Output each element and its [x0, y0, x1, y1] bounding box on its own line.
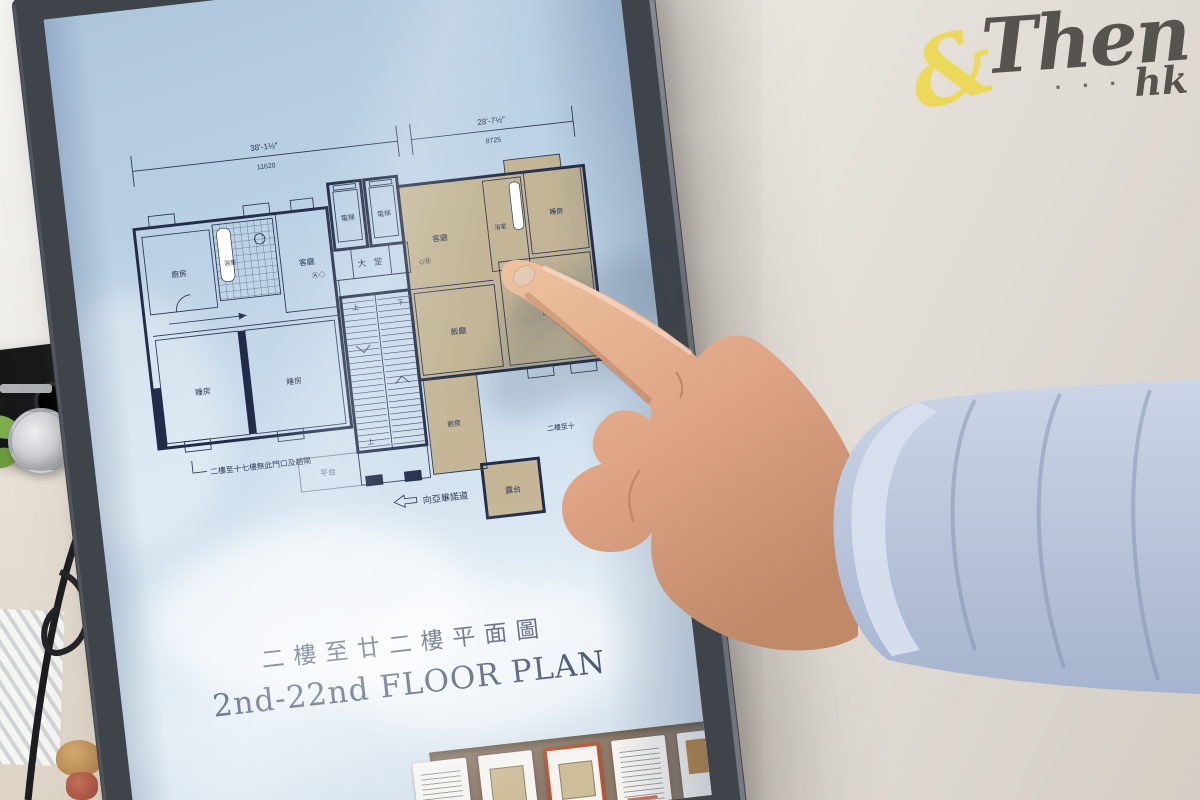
plan-note-right: 二樓至十: [547, 421, 576, 433]
label-terrace: 平台: [320, 466, 337, 478]
wooden-knob-base: [66, 772, 98, 800]
thumbnail-3-selected[interactable]: [543, 742, 607, 800]
thumbnail-content: [420, 766, 466, 800]
sleeve-folds: [953, 390, 1159, 680]
plan-note-left: 二樓至十七樓無此門口及趟閘: [210, 455, 312, 476]
street-direction: 向亞畢諾道: [394, 488, 469, 509]
wooden-knob: [56, 740, 102, 776]
logo-dots: · · ·: [1054, 70, 1125, 101]
room-label-kitchen: 廚房: [171, 268, 188, 280]
room-label-bedroom: 睡房: [286, 375, 303, 387]
lobby-marker-left: Ⓐ◇: [311, 271, 326, 281]
thumbnail-content: [489, 765, 527, 800]
room-label-dining: 飯廳: [450, 325, 467, 337]
room-label-living: 客廳: [432, 232, 449, 244]
dim-right-ft: 28'-7½″: [477, 115, 506, 127]
watermark-logo: & Then · · · hk: [935, 0, 1194, 118]
photo-stage: 38'-1½″ 11620 28'-7½″ 8725: [0, 0, 1200, 800]
sleeve-cuff: [851, 402, 938, 656]
logo-hk: hk: [1132, 56, 1189, 105]
room-label-living: 客廳: [298, 256, 315, 268]
touchscreen[interactable]: 38'-1½″ 11620 28'-7½″ 8725: [44, 0, 712, 800]
lobby-marker-right: ◇Ⓑ: [419, 257, 432, 266]
shirt-sleeve: [833, 380, 1200, 694]
dim-left-mm: 11620: [257, 162, 277, 171]
room-label-lift: 電梯: [377, 208, 392, 219]
thumbnail-2[interactable]: [478, 750, 540, 800]
floor-plan[interactable]: 38'-1½″ 11620 28'-7½″ 8725: [104, 86, 646, 611]
room-label-bedroom: 睡房: [542, 306, 559, 318]
thumbnail-content: [619, 744, 665, 800]
dim-right-mm: 8725: [485, 137, 501, 146]
thumbnail-1[interactable]: [412, 758, 474, 800]
label-balcony: 露台: [505, 483, 522, 495]
kiosk-monitor-frame: 38'-1½″ 11620 28'-7½″ 8725: [11, 0, 749, 800]
thumbnail-4[interactable]: [611, 735, 673, 800]
room-label-bedroom: 睡房: [195, 385, 212, 397]
plan-unit-left[interactable]: 廚房 浴室 客廳 睡房 睡房 二樓至十七樓無此門口及趟閘: [133, 196, 356, 482]
room-label-lift: 電梯: [341, 212, 356, 223]
thumbnail-content: [558, 760, 596, 800]
thumbnail-5[interactable]: [677, 727, 712, 800]
stair-label-down: 下: [396, 298, 404, 307]
thumbnail-content: [685, 736, 711, 774]
street-label: 向亞畢諾道: [422, 489, 468, 505]
room-label-lobby: 大 堂: [357, 255, 386, 269]
dim-left-ft: 38'-1½″: [250, 141, 279, 153]
